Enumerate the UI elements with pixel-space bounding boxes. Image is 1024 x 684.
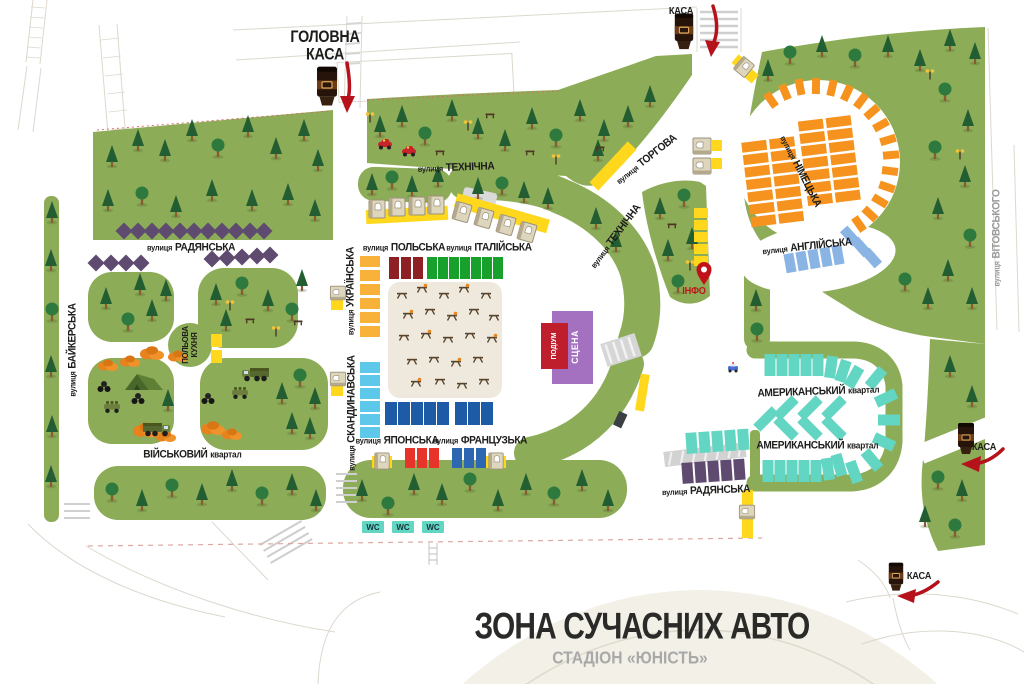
top-kasa-booth-icon <box>675 13 693 49</box>
info-label: ІНФО <box>682 287 705 298</box>
parking-ukrainska <box>360 256 380 337</box>
street-label-tekhnichna-top: вулицяТЕХНІЧНА <box>417 157 494 176</box>
dashed-boundary <box>88 538 762 546</box>
top-kasa-label: КАСА <box>669 7 693 18</box>
wc-sign-2: WC <box>392 521 414 533</box>
stage-label-scene: СЦЕНА <box>571 330 581 363</box>
bottom-kasa-booth-icon <box>889 563 903 591</box>
street-label-vitovskoho: вулицяВІТОВСЬКОГО <box>988 190 1005 287</box>
street-label-bikerska: вулицяБАЙКЕРСЬКА <box>64 303 81 396</box>
parking-skandynavska <box>360 362 380 438</box>
stadium-subtitle: СТАДІОН «ЮНІСТЬ» <box>552 648 708 669</box>
festival-map: ГОЛОВНА КАСА КАСА КАСА КАСА вулицяБАЙКЕР… <box>0 0 1024 684</box>
stage-label-podium: ПОДІУМ <box>550 332 558 359</box>
right-kasa-label: КАСА <box>972 443 996 454</box>
bottom-kasa-label: КАСА <box>907 572 931 583</box>
parking-darkblue-row <box>385 402 493 425</box>
main-kasa-booth-icon <box>317 67 337 106</box>
map-graphics <box>0 0 1024 684</box>
parking-yaponska <box>405 448 439 468</box>
parking-italiyska <box>427 257 503 279</box>
parking-frantsuzka <box>452 448 486 468</box>
street-label-italiyska: вулицяІТАЛІЙСЬКА <box>446 239 531 256</box>
street-label-radianska-left: вулицяРАДЯНСЬКА <box>147 239 235 256</box>
street-label-yaponska: вулицяЯПОНСЬКА <box>356 432 439 449</box>
street-label-polska: вулицяПОЛЬСЬКА <box>363 239 445 256</box>
parking-american <box>753 354 900 484</box>
wc-sign-1: WC <box>362 521 384 533</box>
zone-title: ЗОНА СУЧАСНИХ АВТО <box>475 606 810 649</box>
street-label-ukrainska: вулицяУКРАЇНСЬКА <box>342 247 359 335</box>
street-label-skandynavska: вулицяСКАНДИНАВСЬКА <box>343 355 360 470</box>
zone-label-american-2: АМЕРИКАНСЬКИЙквартал <box>754 437 879 454</box>
street-label-frantsuzka: вулицяФРАНЦУЗЬКА <box>433 432 527 449</box>
street-label-radianska-right: вулицяРАДЯНСЬКА <box>662 480 751 500</box>
parking-polska <box>389 257 423 279</box>
zone-label-field-kitchen: ПОЛЬОВАКУХНЯ <box>181 326 199 364</box>
wc-sign-3: WC <box>422 521 444 533</box>
picnic-area <box>388 282 502 398</box>
zone-label-military: ВІЙСЬКОВИЙквартал <box>140 446 241 463</box>
main-kasa-label: ГОЛОВНА КАСА <box>290 29 359 64</box>
